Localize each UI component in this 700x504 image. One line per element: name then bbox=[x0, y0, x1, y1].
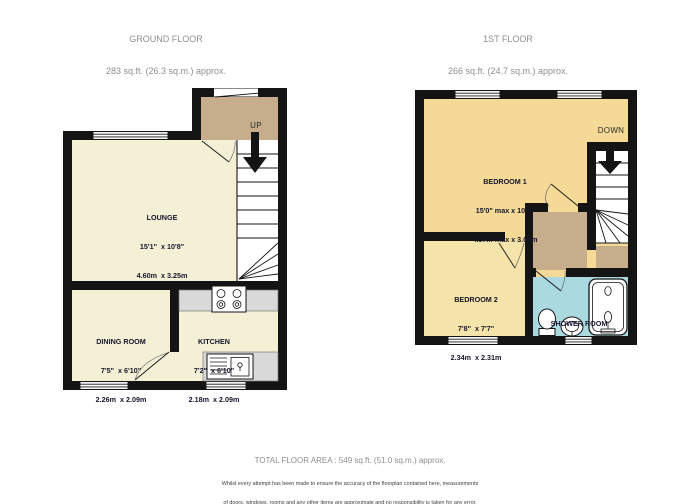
ground-floor-header: GROUND FLOOR 283 sq.ft. (26.3 sq.m.) app… bbox=[106, 12, 226, 98]
dining-dims-m: 2.26m x 2.09m bbox=[96, 395, 147, 405]
disclaimer-line: of doors, windows, rooms and any other i… bbox=[220, 500, 479, 504]
kitchen-label: KITCHEN 7'2" x 6'10" 2.18m x 2.09m bbox=[189, 318, 240, 423]
bedroom1-name: BEDROOM 1 bbox=[472, 177, 537, 187]
bedroom1-label: BEDROOM 1 15'0" max x 10'0" 4.57m max x … bbox=[472, 158, 537, 263]
floorplan-page: GROUND FLOOR 283 sq.ft. (26.3 sq.m.) app… bbox=[0, 0, 700, 504]
kitchen-name: KITCHEN bbox=[189, 337, 240, 347]
first-floor-header: 1ST FLOOR 266 sq.ft. (24.7 sq.m.) approx… bbox=[448, 12, 568, 98]
hob-icon bbox=[212, 286, 246, 312]
ground-floor-title: GROUND FLOOR bbox=[106, 34, 226, 45]
bedroom1-dims-ft: 15'0" max x 10'0" bbox=[472, 206, 537, 216]
dining-name: DINING ROOM bbox=[96, 337, 147, 347]
first-floor-area: 266 sq.ft. (24.7 sq.m.) approx. bbox=[448, 66, 568, 77]
entrance-hall-floor bbox=[201, 97, 278, 140]
dining-dims-ft: 7'5" x 6'10" bbox=[96, 366, 147, 376]
shower-room-name: SHOWER ROOM bbox=[551, 319, 608, 329]
dining-room-label: DINING ROOM 7'5" x 6'10" 2.26m x 2.09m bbox=[96, 318, 147, 423]
lounge-dims-ft: 15'1" x 10'8" bbox=[137, 242, 188, 252]
bedroom2-name: BEDROOM 2 bbox=[451, 295, 502, 305]
landing-corridor-floor bbox=[596, 246, 628, 268]
landing-floor bbox=[533, 212, 587, 270]
ground-floor-area: 283 sq.ft. (26.3 sq.m.) approx. bbox=[106, 66, 226, 77]
bedroom2-label: BEDROOM 2 7'8" x 7'7" 2.34m x 2.31m bbox=[451, 276, 502, 381]
disclaimer-line: Whilst every attempt has been made to en… bbox=[220, 481, 479, 487]
bedroom1-dims-m: 4.57m max x 3.05m bbox=[472, 235, 537, 245]
lounge-name: LOUNGE bbox=[137, 213, 188, 223]
bedroom2-dims-ft: 7'8" x 7'7" bbox=[451, 324, 502, 334]
first-floor-title: 1ST FLOOR bbox=[448, 34, 568, 45]
kitchen-dims-m: 2.18m x 2.09m bbox=[189, 395, 240, 405]
shower-room-label: SHOWER ROOM bbox=[551, 300, 608, 348]
lounge-window bbox=[93, 132, 168, 140]
up-label: UP bbox=[250, 121, 262, 130]
disclaimer: Whilst every attempt has been made to en… bbox=[220, 468, 479, 504]
down-label: DOWN bbox=[598, 126, 625, 135]
bedroom2-dims-m: 2.34m x 2.31m bbox=[451, 353, 502, 363]
total-floor-area: TOTAL FLOOR AREA : 549 sq.ft. (51.0 sq.m… bbox=[254, 456, 445, 465]
lounge-label: LOUNGE 15'1" x 10'8" 4.60m x 3.25m bbox=[137, 194, 188, 299]
lounge-dims-m: 4.60m x 3.25m bbox=[137, 271, 188, 281]
kitchen-dims-ft: 7'2" x 6'10" bbox=[189, 366, 240, 376]
